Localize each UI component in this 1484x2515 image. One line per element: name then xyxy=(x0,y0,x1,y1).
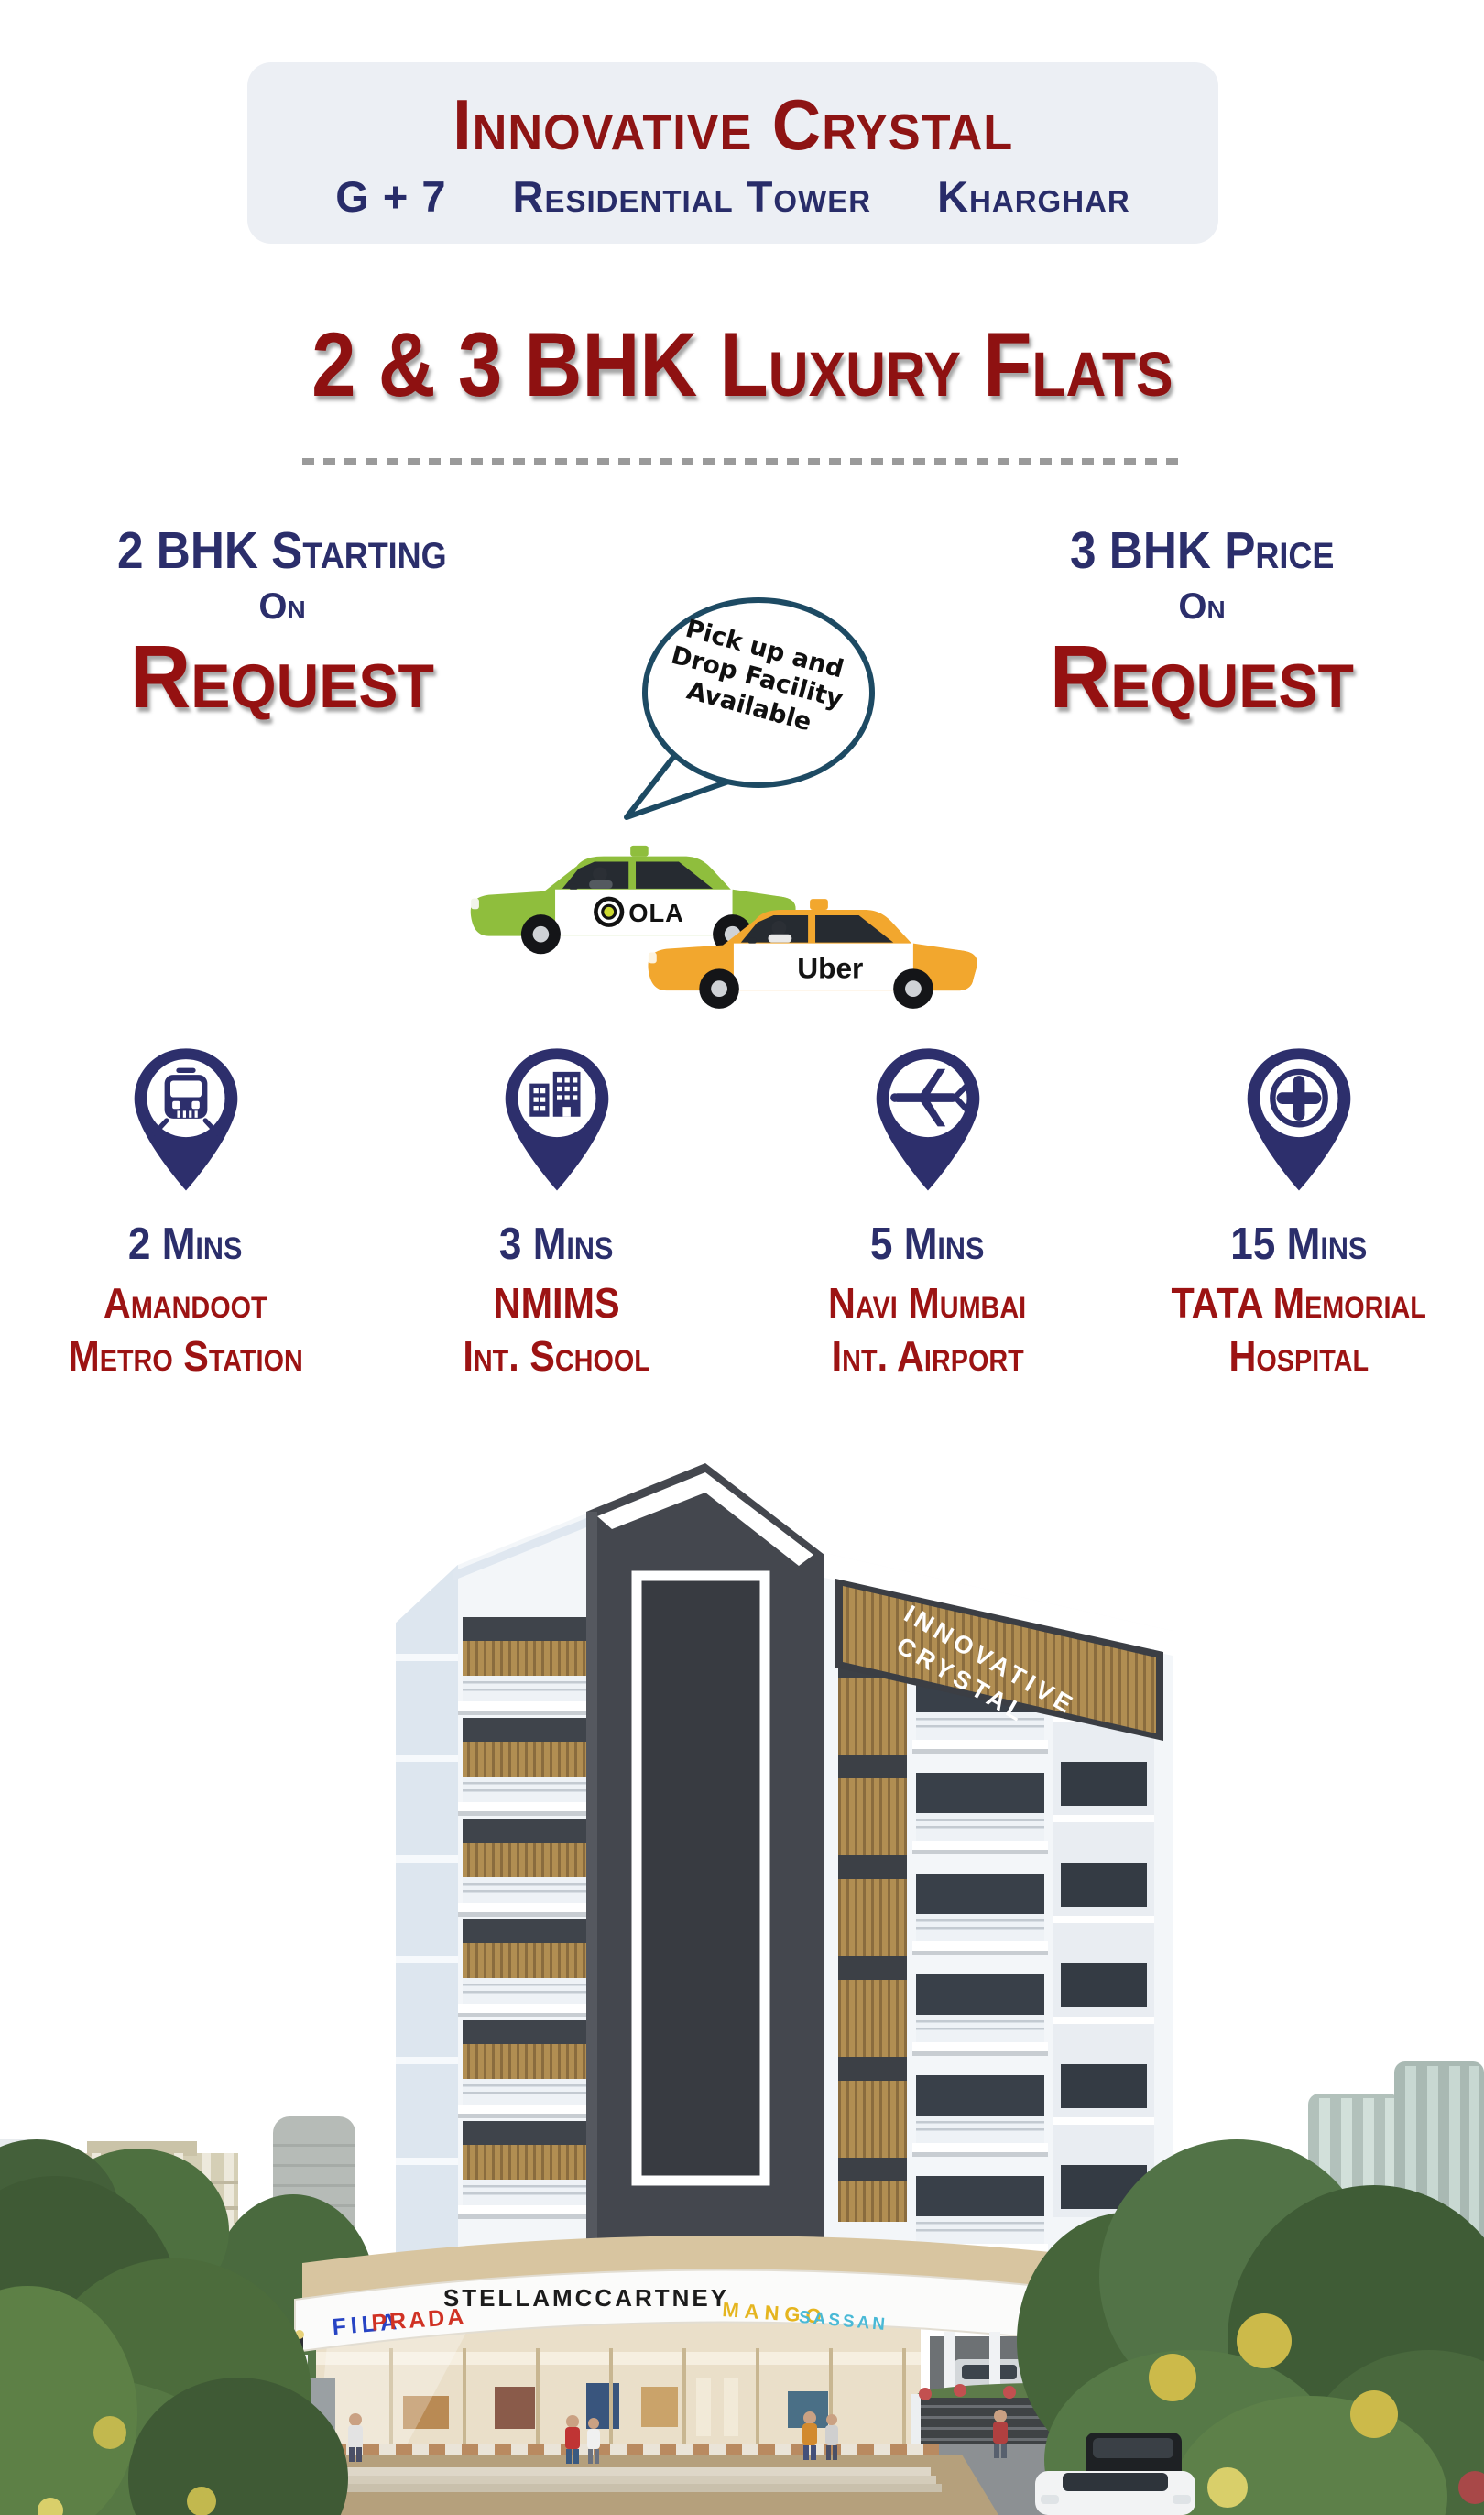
offer-2bhk-heading: 2 BHK Starting xyxy=(117,524,447,579)
metro-mins: 2 Mins xyxy=(128,1222,243,1267)
offer-3bhk-on: On xyxy=(964,588,1440,625)
hospital-mins: 15 Mins xyxy=(1230,1222,1367,1267)
school-buildings-icon xyxy=(498,1043,616,1198)
offer-2bhk: 2 BHK Starting On Request xyxy=(44,524,520,721)
hospital-cross-icon xyxy=(1240,1043,1358,1198)
offer-3bhk: 3 BHK Price On Request xyxy=(964,524,1440,721)
subtitle-floors: G + 7 xyxy=(335,175,446,218)
school-mins: 3 Mins xyxy=(499,1222,614,1267)
school-name-1: NMIMS xyxy=(493,1282,619,1324)
metro-train-icon xyxy=(127,1043,245,1198)
airport-name-2: Int. Airport xyxy=(831,1335,1023,1377)
airplane-icon xyxy=(869,1043,987,1198)
shop-sign-stella: STELLAMCCARTNEY xyxy=(443,2284,729,2312)
project-title: Innovative Crystal xyxy=(438,89,1028,160)
hospital-name-1: TATA Memorial xyxy=(1171,1282,1425,1324)
project-title-text: Innovative Crystal xyxy=(453,89,1013,160)
location-hospital: 15 Mins TATA Memorial Hospital xyxy=(1113,1043,1484,1377)
flyer-page: Innovative Crystal G + 7 Residential Tow… xyxy=(0,0,1484,2515)
main-tower: INNOVATIVE CRYSTAL xyxy=(392,1463,1173,2304)
offer-3bhk-price: Request xyxy=(1050,632,1354,721)
headline: 2 & 3 BHK Luxury Flats xyxy=(0,319,1484,410)
metro-name-2: Metro Station xyxy=(68,1335,303,1377)
airport-mins: 5 Mins xyxy=(870,1222,985,1267)
building-render: INNOVATIVE CRYSTAL xyxy=(0,1425,1484,2515)
uber-label: Uber xyxy=(797,951,863,984)
project-header-card: Innovative Crystal G + 7 Residential Tow… xyxy=(247,62,1218,244)
airport-name-1: Navi Mumbai xyxy=(828,1282,1026,1324)
hospital-name-2: Hospital xyxy=(1228,1335,1369,1377)
location-metro: 2 Mins Amandoot Metro Station xyxy=(0,1043,371,1377)
offer-3bhk-heading: 3 BHK Price xyxy=(1070,524,1334,579)
location-airport: 5 Mins Navi Mumbai Int. Airport xyxy=(742,1043,1113,1377)
dashed-divider xyxy=(302,458,1182,465)
project-subtitle: G + 7 Residential Tower Kharghar xyxy=(335,175,1129,218)
uber-cab: Uber xyxy=(636,894,998,1017)
school-name-2: Int. School xyxy=(463,1335,650,1377)
nearby-locations: 2 Mins Amandoot Metro Station 3 Mins NMI… xyxy=(0,1043,1484,1377)
subtitle-type: Residential Tower xyxy=(513,175,872,218)
subtitle-location: Kharghar xyxy=(937,175,1130,218)
cab-illustration: OLA Uber xyxy=(431,823,1053,1056)
headline-text: 2 & 3 BHK Luxury Flats xyxy=(311,319,1173,410)
metro-name-1: Amandoot xyxy=(104,1282,267,1324)
offer-2bhk-price: Request xyxy=(130,632,434,721)
location-school: 3 Mins NMIMS Int. School xyxy=(371,1043,742,1377)
offer-2bhk-on: On xyxy=(44,588,520,625)
pickup-drop-bubble: Pick up and Drop Facility Available xyxy=(605,586,890,841)
